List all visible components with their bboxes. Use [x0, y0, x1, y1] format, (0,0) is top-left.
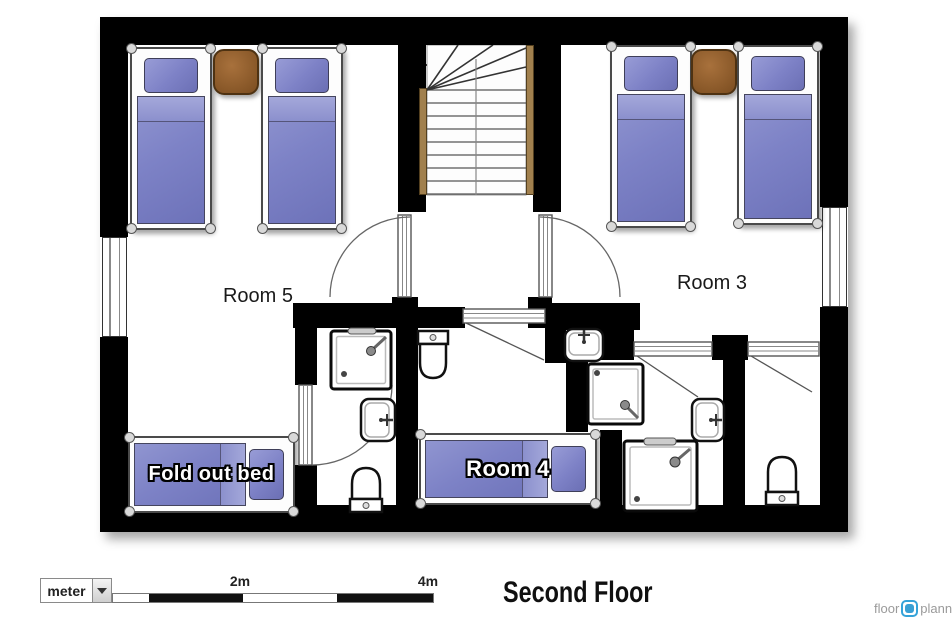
single-bed-room5-left — [130, 47, 212, 230]
bedside-table-room3 — [691, 49, 737, 95]
scale-mark-4m: 4m — [408, 573, 448, 589]
wall-bath1-west-upper — [295, 328, 317, 385]
wall-midbath-north-stub — [600, 325, 634, 360]
pillow — [275, 58, 329, 93]
wall-midbath-east — [723, 355, 745, 505]
room4-label: Room 4 — [421, 435, 595, 503]
wall-sink-nook-left — [545, 330, 566, 363]
pillow — [624, 56, 678, 91]
room3-label: Room 3 — [642, 272, 782, 295]
fold-out-bed-label: Fold out bed — [130, 438, 293, 511]
duvet — [744, 94, 812, 219]
scale-bar — [112, 593, 434, 603]
single-bed-room3-left — [610, 45, 692, 228]
wall-stairwell-right — [533, 45, 561, 212]
wall-midbath-west — [566, 358, 588, 432]
window — [102, 237, 127, 337]
logo-text-floor: floor — [874, 601, 899, 616]
wall-right-upper — [820, 17, 848, 207]
duvet — [137, 96, 205, 224]
dropdown-arrow-icon — [97, 588, 107, 594]
pillow — [144, 58, 198, 93]
wall-bath1-east — [396, 303, 418, 505]
pillow — [751, 56, 805, 91]
bedside-table-room5 — [213, 49, 259, 95]
scale-segment — [113, 594, 149, 602]
fold-out-bed: Fold out bed — [128, 436, 295, 513]
floorplanner-icon — [901, 600, 918, 617]
stair-rail-left — [419, 88, 427, 195]
scale-segment — [149, 594, 243, 602]
duvet — [617, 94, 685, 222]
wall-bath1-west-lower — [295, 465, 317, 505]
scale-segment — [337, 594, 433, 602]
floorplan-page: Fold out bed Room 4 — [0, 0, 952, 633]
wall-left-lower — [100, 337, 128, 505]
scale-segment — [243, 594, 337, 602]
single-bed-room3-right — [737, 45, 819, 225]
single-bed-room5-right — [261, 47, 343, 230]
wall-right-lower — [820, 307, 848, 505]
wall-left-upper — [100, 17, 128, 237]
room5-label: Room 5 — [188, 285, 328, 308]
floorplanner-logo: floor planner — [874, 600, 952, 617]
unit-dropdown-button[interactable] — [92, 578, 112, 603]
wall-room4-east — [600, 430, 622, 505]
logo-text-planner: planner — [920, 601, 952, 616]
stairs-direction-arrow-icon — [412, 60, 422, 70]
unit-dropdown[interactable]: meter — [40, 578, 93, 603]
scale-mark-2m: 2m — [220, 573, 260, 589]
floor-title: Second Floor — [503, 576, 653, 610]
wall-room4-north — [418, 307, 465, 328]
duvet — [268, 96, 336, 224]
window — [822, 207, 847, 307]
unit-dropdown-value: meter — [47, 583, 85, 599]
single-bed-room4: Room 4 — [419, 433, 597, 505]
stair-rail-right — [526, 45, 534, 195]
